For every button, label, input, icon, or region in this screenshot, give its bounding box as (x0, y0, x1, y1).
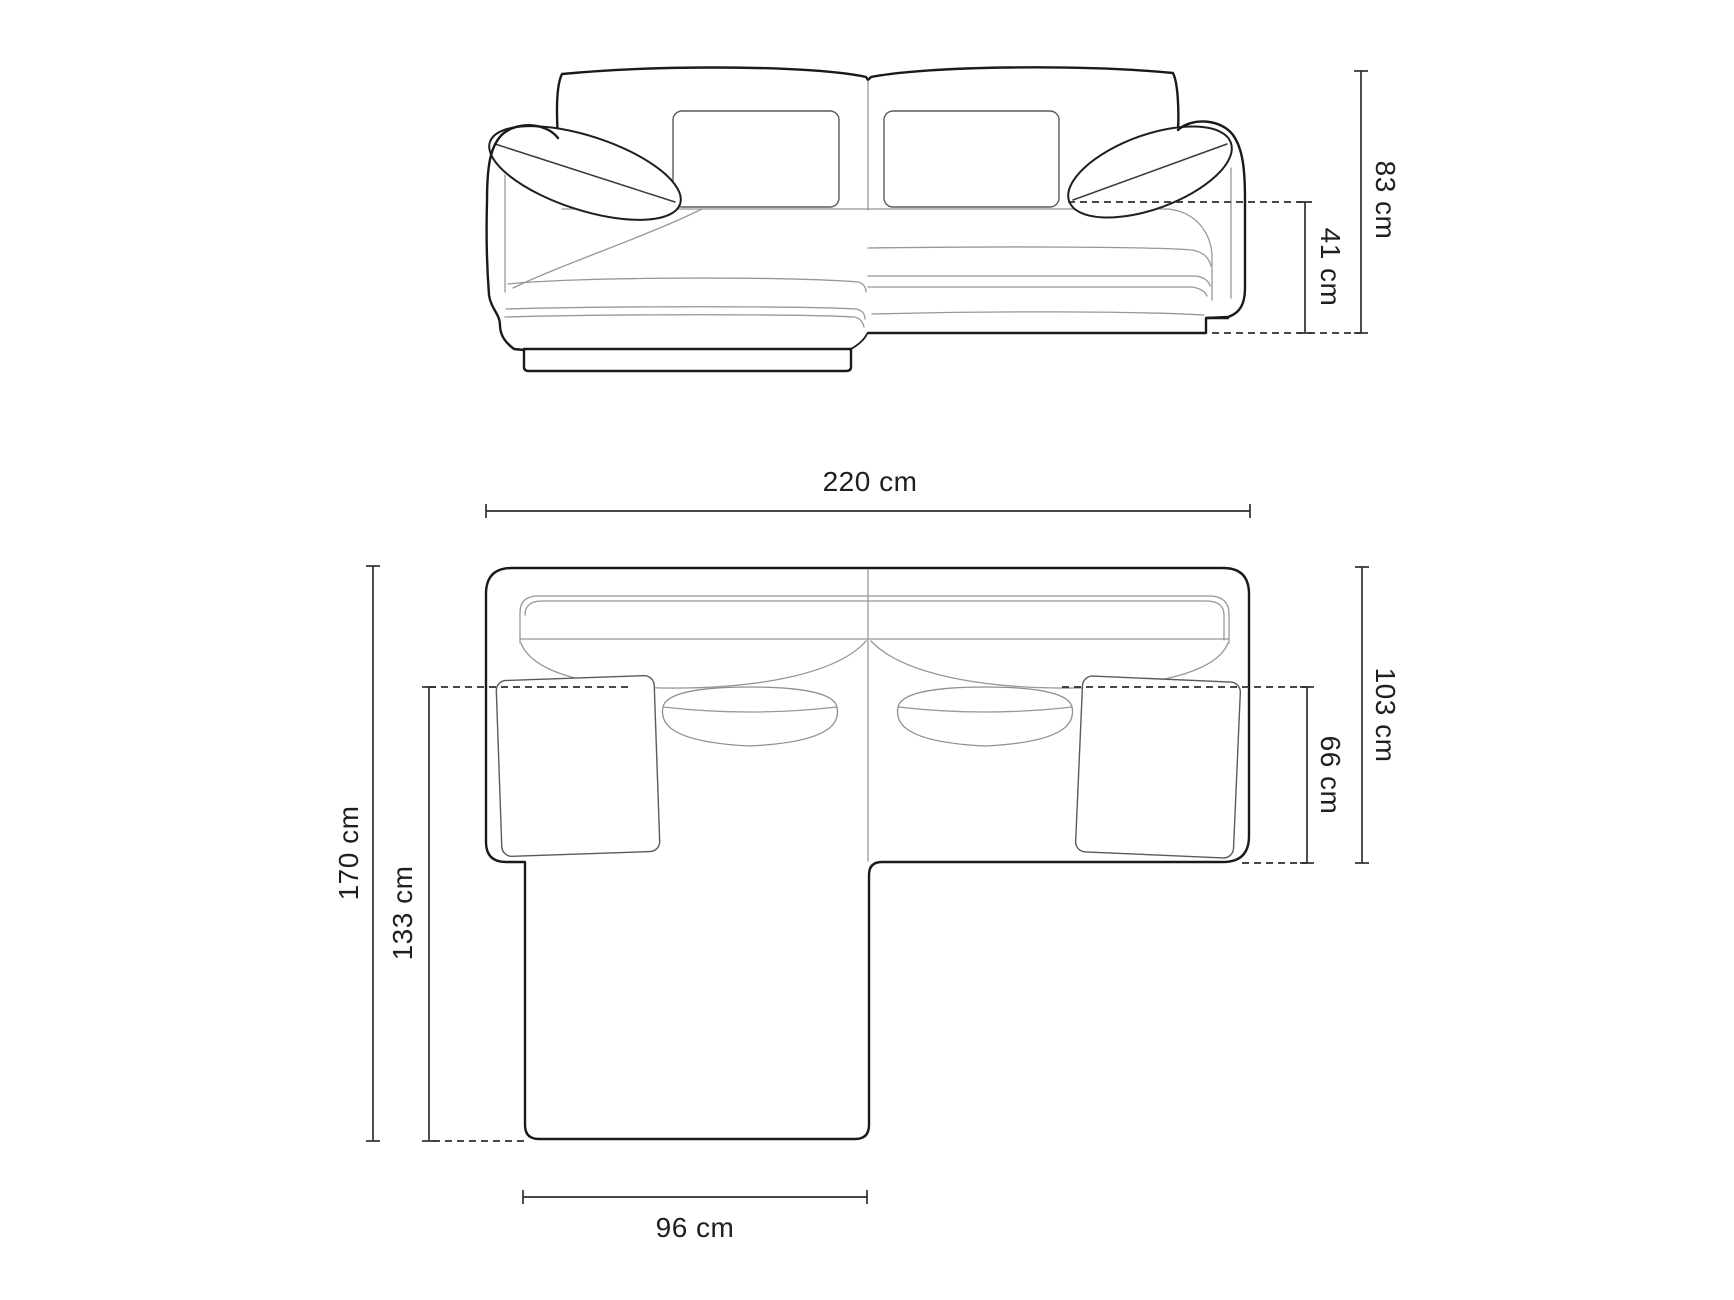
front-view-dimensions: 41 cm 83 cm (1068, 71, 1401, 333)
dim-chaise-length-label: 133 cm (387, 866, 418, 961)
base-bottom-edge (868, 318, 1228, 333)
dim-total-depth-label: 170 cm (333, 806, 364, 901)
dim-total-depth: 170 cm (333, 566, 380, 1141)
dim-total-width: 220 cm (486, 466, 1250, 518)
back-pillow-right (884, 111, 1059, 207)
dim-seat-depth-label: 66 cm (1315, 736, 1346, 815)
sofa-front-view (478, 67, 1245, 371)
dim-total-height-label: 83 cm (1370, 161, 1401, 240)
dim-total-height: 83 cm (1354, 71, 1401, 333)
arm-cushion-left (478, 107, 691, 239)
top-pillow-left (496, 675, 660, 856)
chaise-front-plinth (524, 349, 851, 371)
dim-seat-height: 41 cm (1298, 202, 1346, 333)
sofa-top-view (486, 568, 1249, 1139)
chaise-front-corner (851, 334, 867, 349)
top-pillow-right (1075, 676, 1241, 859)
dim-chaise-width: 96 cm (523, 1190, 867, 1243)
dim-body-depth: 103 cm (1355, 567, 1401, 863)
dim-chaise-width-label: 96 cm (656, 1212, 735, 1243)
dim-body-depth-label: 103 cm (1370, 668, 1401, 763)
top-bolster-right (897, 687, 1072, 746)
diagram-svg: 41 cm 83 cm (0, 0, 1734, 1300)
furniture-dimension-diagram: 41 cm 83 cm (0, 0, 1734, 1300)
dim-seat-depth: 66 cm (1300, 687, 1346, 863)
dim-chaise-length: 133 cm (387, 687, 436, 1141)
back-pillow-left (673, 111, 839, 207)
top-bolster-left (662, 687, 837, 746)
arm-cushion-right (1057, 108, 1244, 236)
dim-seat-height-label: 41 cm (1315, 228, 1346, 307)
dim-total-width-label: 220 cm (823, 466, 918, 497)
